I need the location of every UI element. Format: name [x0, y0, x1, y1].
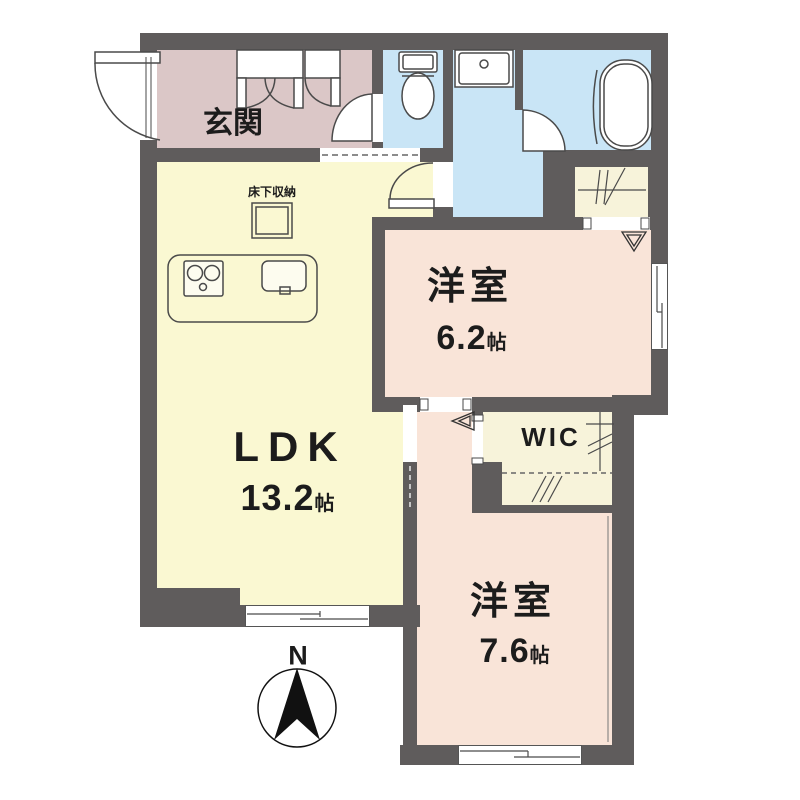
- underfloor-storage-box: [252, 203, 292, 238]
- room-label-ldk: LDK: [233, 426, 346, 468]
- bathtub: [593, 60, 652, 150]
- fixtures-layer: [0, 0, 800, 800]
- wic-rod-symbol: [586, 412, 614, 471]
- size-unit: 帖: [315, 493, 336, 515]
- room-label-wic: WIC: [521, 424, 581, 450]
- size-value: 7.6: [479, 632, 529, 670]
- toilet-fixture: [399, 52, 437, 119]
- bath-door-swing: [523, 110, 565, 151]
- underfloor-storage-label: 床下収納: [248, 186, 296, 198]
- compass-rose: [258, 668, 336, 747]
- room-size-bedroom-62: 6.2帖: [436, 321, 507, 355]
- bedroom62-entry-glyph: [452, 412, 474, 430]
- washbasin: [455, 50, 513, 87]
- room-size-bedroom-76: 7.6帖: [479, 634, 550, 668]
- size-value: 6.2: [436, 319, 486, 357]
- wic-lower-rod-symbol: [532, 476, 562, 502]
- kitchen-sink: [262, 261, 306, 294]
- kitchen-stove: [184, 261, 223, 296]
- room-label-bedroom-76: 洋室: [470, 583, 556, 621]
- size-unit: 帖: [530, 645, 551, 667]
- shoe-cabinet: [237, 50, 340, 108]
- size-value: 13.2: [240, 477, 314, 518]
- room-size-ldk: 13.2帖: [240, 480, 335, 516]
- closet-rod-symbol: [578, 168, 646, 205]
- ldk-window-sash: [247, 611, 368, 619]
- compass-north-label: N: [288, 643, 308, 670]
- size-unit: 帖: [487, 332, 508, 354]
- kitchen-counter: [168, 255, 317, 322]
- room-label-bedroom-62: 洋室: [427, 268, 513, 306]
- bedroom76-window-sash: [460, 751, 580, 757]
- floor-plan: 玄関 床下収納 LDK 13.2帖 洋室 6.2帖 WIC 洋室 7.6帖 N: [0, 0, 800, 800]
- bedroom62-window-sash: [657, 266, 662, 348]
- entrance-door-swing: [95, 52, 160, 140]
- washroom-door-swing: [389, 163, 434, 208]
- closet-opening-glyph: [622, 232, 646, 251]
- room-label-genkan: 玄関: [203, 109, 263, 139]
